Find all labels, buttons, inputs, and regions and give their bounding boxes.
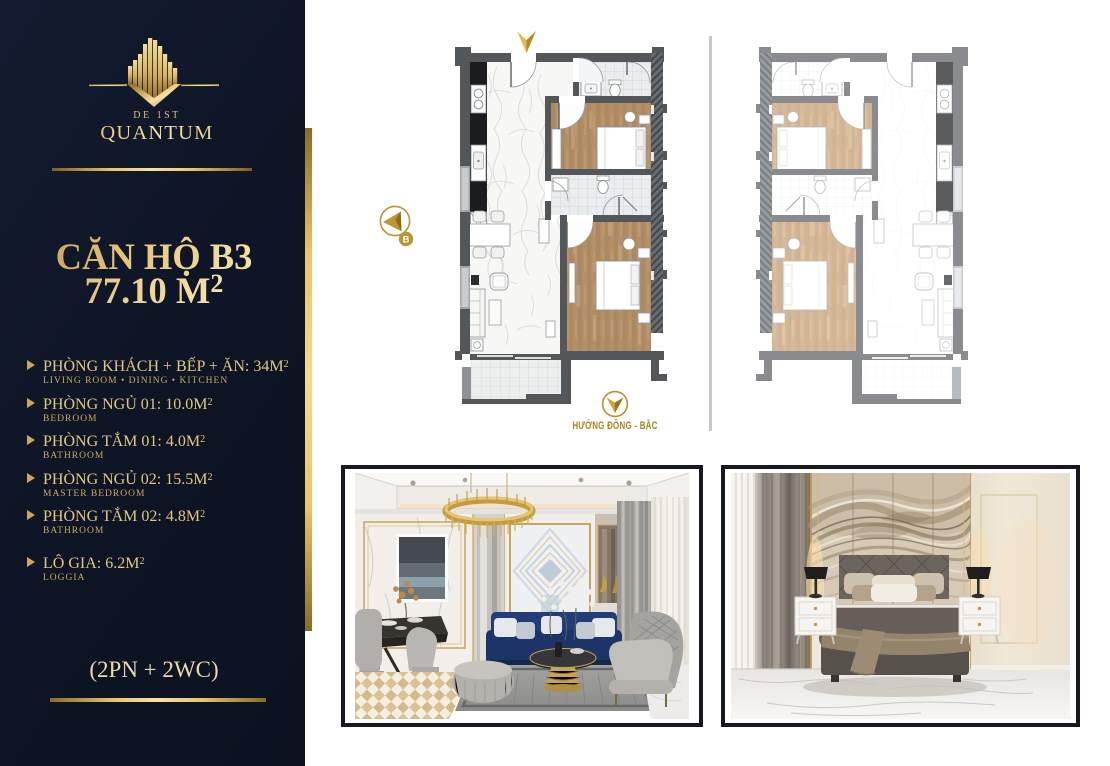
svg-text:B: B	[403, 235, 410, 246]
